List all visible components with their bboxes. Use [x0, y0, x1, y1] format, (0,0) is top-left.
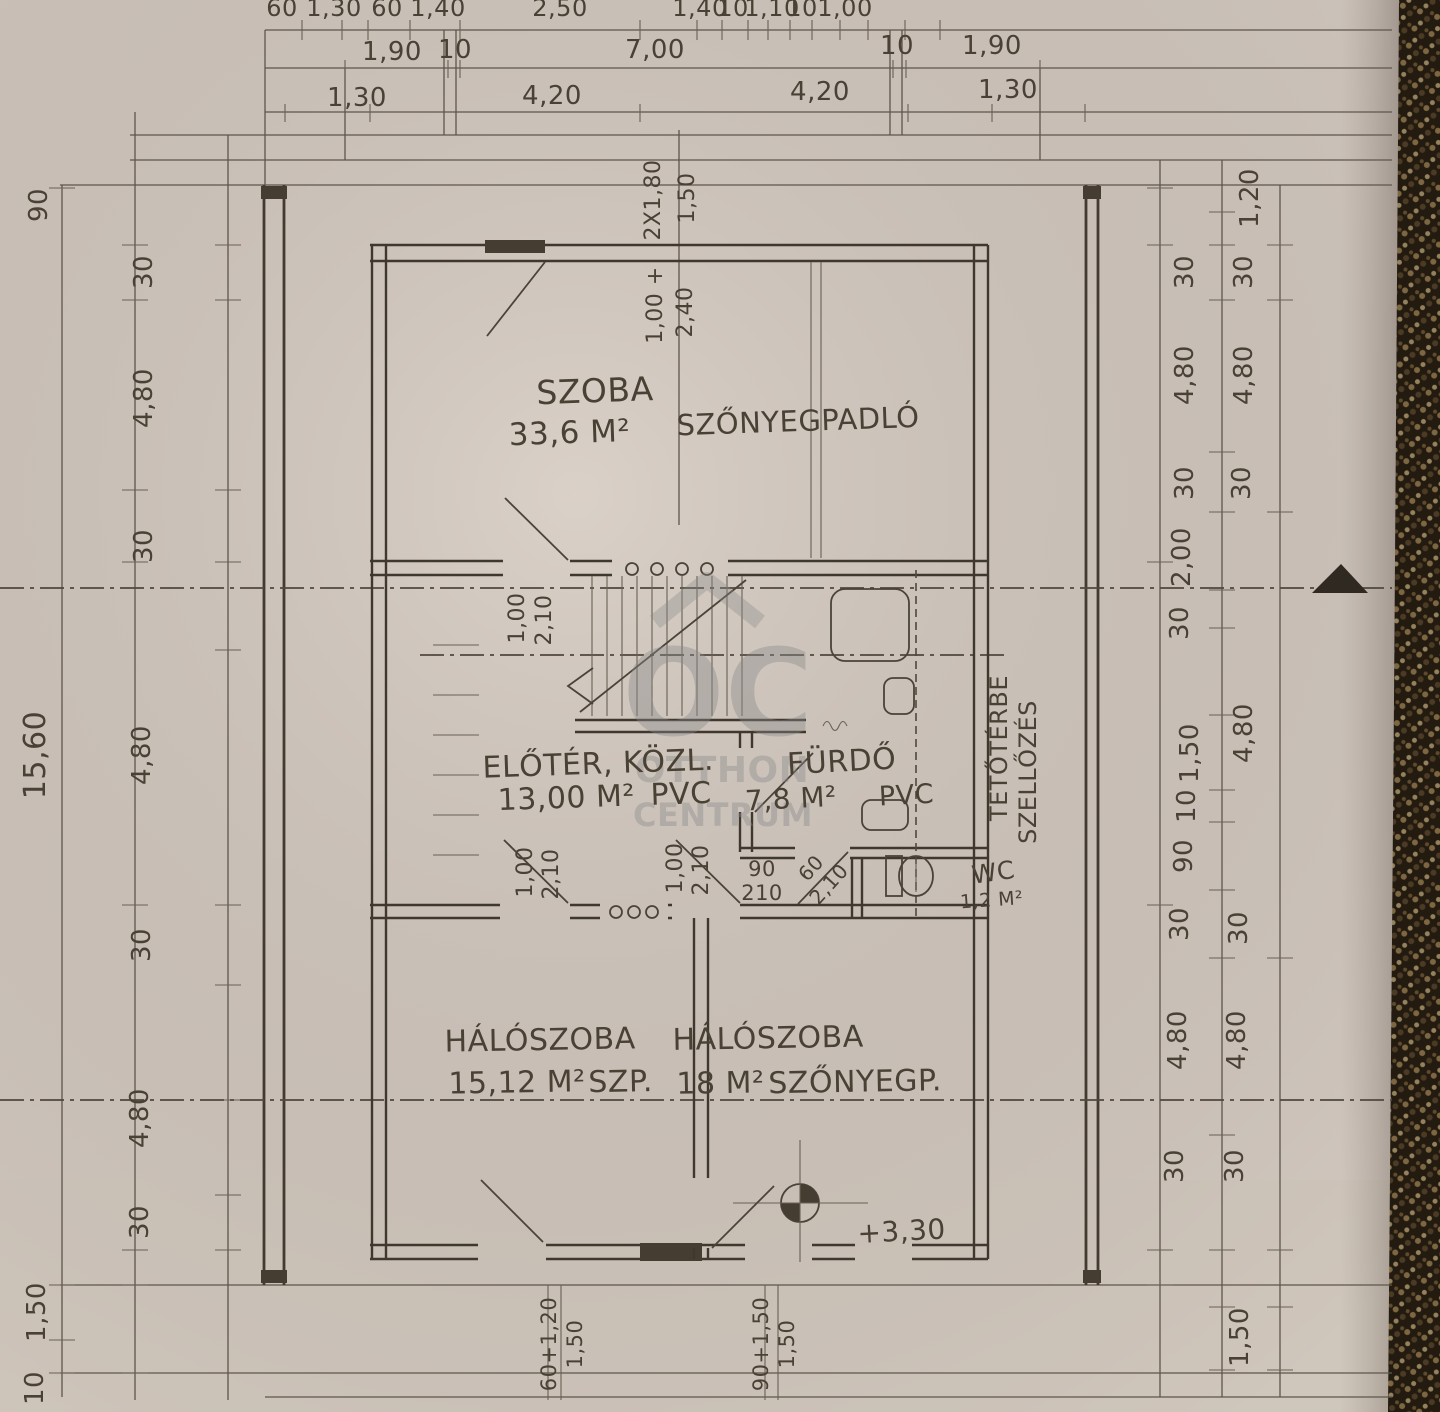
room-eloter-area: 13,00 M²	[497, 778, 635, 818]
dim-ro-5: 30	[1224, 911, 1254, 945]
dim-li-2: 30	[129, 529, 159, 563]
dim-ri-0: 30	[1170, 255, 1200, 289]
opening-bottom-right-w: 90+1,50	[749, 1297, 773, 1392]
dimension-column-left-inner: 30 4,80 30 4,80 30 4,80 30	[125, 255, 159, 1239]
dim-top1-0: 60	[266, 0, 298, 22]
room-furdo-name: FÜRDŐ	[786, 740, 897, 783]
dim-li-5: 4,80	[125, 1088, 155, 1148]
dim-top1-9: 1,00	[817, 0, 872, 22]
dim-ri-8: 30	[1165, 907, 1195, 941]
dim-top3-0: 1,30	[327, 83, 387, 113]
dim-top1-3: 1,40	[410, 0, 465, 22]
dim-ro-7: 30	[1220, 1149, 1250, 1183]
room-furdo-floor: PVC	[878, 779, 935, 813]
dim-ri-3: 2,00	[1167, 527, 1197, 587]
dim-li-6: 30	[125, 1205, 155, 1239]
dim-ri-6: 10	[1172, 789, 1202, 823]
dim-ro-8: 1,50	[1225, 1307, 1255, 1367]
dim-lo-1: 15,60	[18, 711, 53, 799]
dim-ri-4: 30	[1165, 606, 1195, 640]
room-szoba-name: SZOBA	[536, 369, 655, 412]
room-haloszoba1-floor: SZP.	[588, 1064, 653, 1100]
room-wc-name: WC	[970, 855, 1017, 890]
dim-lo-2: 1,50	[22, 1282, 52, 1342]
room-haloszoba1-area: 15,12 M²	[448, 1064, 586, 1101]
attic-vent-note-line2: SZELLŐZÉS	[1012, 700, 1042, 844]
dim-top2-3: 10	[880, 31, 914, 61]
dim-top3-3: 1,30	[978, 75, 1038, 105]
dim-lo-3: 10	[20, 1371, 50, 1405]
dim-li-1: 4,80	[129, 368, 159, 428]
dim-ri-7: 90	[1169, 839, 1199, 873]
room-haloszoba2-area: 18 M²	[676, 1065, 765, 1102]
opening-hall-door1-h: 2,10	[539, 849, 564, 900]
dim-top3-1: 4,20	[522, 81, 582, 111]
room-eloter: ELŐTÉR, KÖZL. 13,00 M² PVC	[482, 741, 716, 819]
floor-plan-photo: OC OTTHON CENTRUM SZOBA 33,6 M² SZŐNYEGP…	[0, 0, 1440, 1412]
opening-hall-door3-h: 210	[741, 881, 783, 905]
room-wc-area: 1,2 M²	[959, 887, 1024, 913]
room-haloszoba2-name: HÁLÓSZOBA	[672, 1018, 864, 1058]
opening-stair-door-w: 1,00	[505, 593, 530, 644]
dim-ro-4: 4,80	[1229, 703, 1259, 763]
room-szoba-area: 33,6 M²	[508, 413, 631, 453]
dim-top1-8: 10	[786, 0, 818, 22]
room-haloszoba1-name: HÁLÓSZOBA	[444, 1019, 636, 1059]
dim-li-0: 30	[129, 255, 159, 289]
dim-top3-2: 4,20	[790, 77, 850, 107]
dim-lo-0: 90	[24, 188, 54, 222]
opening-bottom-right-h: 1,50	[775, 1320, 799, 1369]
attic-vent-note-line1: TETŐTÉRBE	[983, 675, 1013, 822]
dim-top2-1: 10	[438, 35, 472, 65]
dim-ro-3: 30	[1227, 466, 1257, 500]
dim-ro-6: 4,80	[1222, 1010, 1252, 1070]
watermark-monogram: OC	[622, 625, 813, 764]
dim-top2-2: 7,00	[625, 35, 685, 65]
opening-top-window-h: 1,50	[675, 173, 700, 224]
dim-ro-1: 30	[1229, 255, 1259, 289]
room-eloter-floor: PVC	[650, 776, 712, 813]
dim-top1-2: 60	[371, 0, 403, 22]
dim-ri-1: 4,80	[1170, 345, 1200, 405]
opening-bottom-left-w: 60+1,20	[537, 1297, 561, 1392]
dimension-row-top-1: 60 1,30 60 1,40 2,50 1,40 10 1,10 10 1,0…	[266, 0, 872, 22]
room-furdo-area: 7,8 M²	[744, 780, 837, 818]
dim-li-4: 30	[127, 928, 157, 962]
opening-stair-door-h: 2,10	[532, 595, 557, 646]
opening-hall-door3-w: 90	[748, 857, 776, 881]
opening-hall-door1-w: 1,00	[513, 847, 538, 898]
dim-top2-4: 1,90	[962, 31, 1022, 61]
dim-ro-0: 1,20	[1235, 168, 1265, 228]
room-haloszoba2-floor: SZŐNYEGP.	[768, 1061, 942, 1101]
dim-top1-4: 2,50	[532, 0, 587, 22]
dim-ri-9: 4,80	[1163, 1010, 1193, 1070]
opening-hall-door2-h: 2,10	[689, 845, 714, 896]
opening-top-window-w: 2X1,80	[641, 159, 666, 240]
dim-ri-2: 30	[1170, 466, 1200, 500]
dim-ro-2: 4,80	[1229, 345, 1259, 405]
level-mark-value: +3,30	[857, 1212, 947, 1250]
dim-top1-1: 1,30	[306, 0, 361, 22]
opening-bottom-left-h: 1,50	[563, 1320, 587, 1369]
dim-ri-10: 30	[1160, 1149, 1190, 1183]
opening-top-window2-w: 1,00 +	[643, 266, 668, 343]
dim-li-3: 4,80	[127, 725, 157, 785]
opening-top-window2-h: 2,40	[673, 287, 698, 338]
opening-hall-door2-w: 1,00	[663, 843, 688, 894]
dim-ri-5: 1,50	[1175, 723, 1205, 783]
dim-top2-0: 1,90	[362, 37, 422, 67]
